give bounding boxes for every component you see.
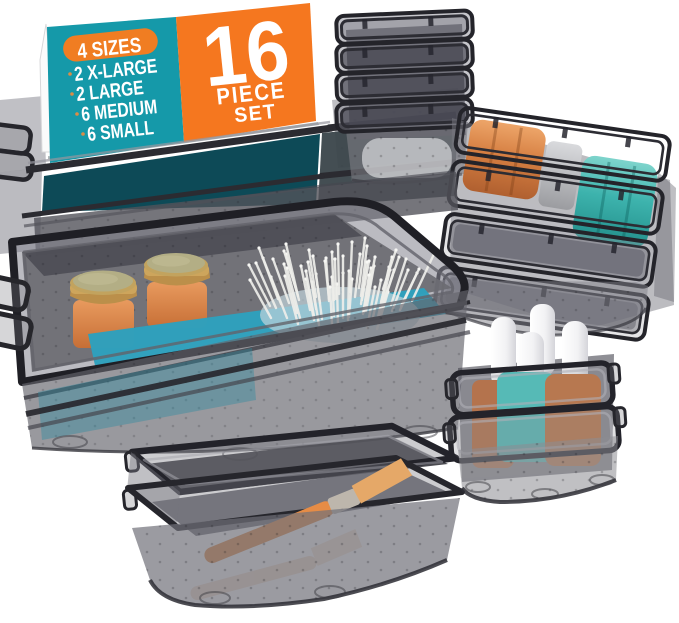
svg-text:SET: SET [233,100,277,127]
